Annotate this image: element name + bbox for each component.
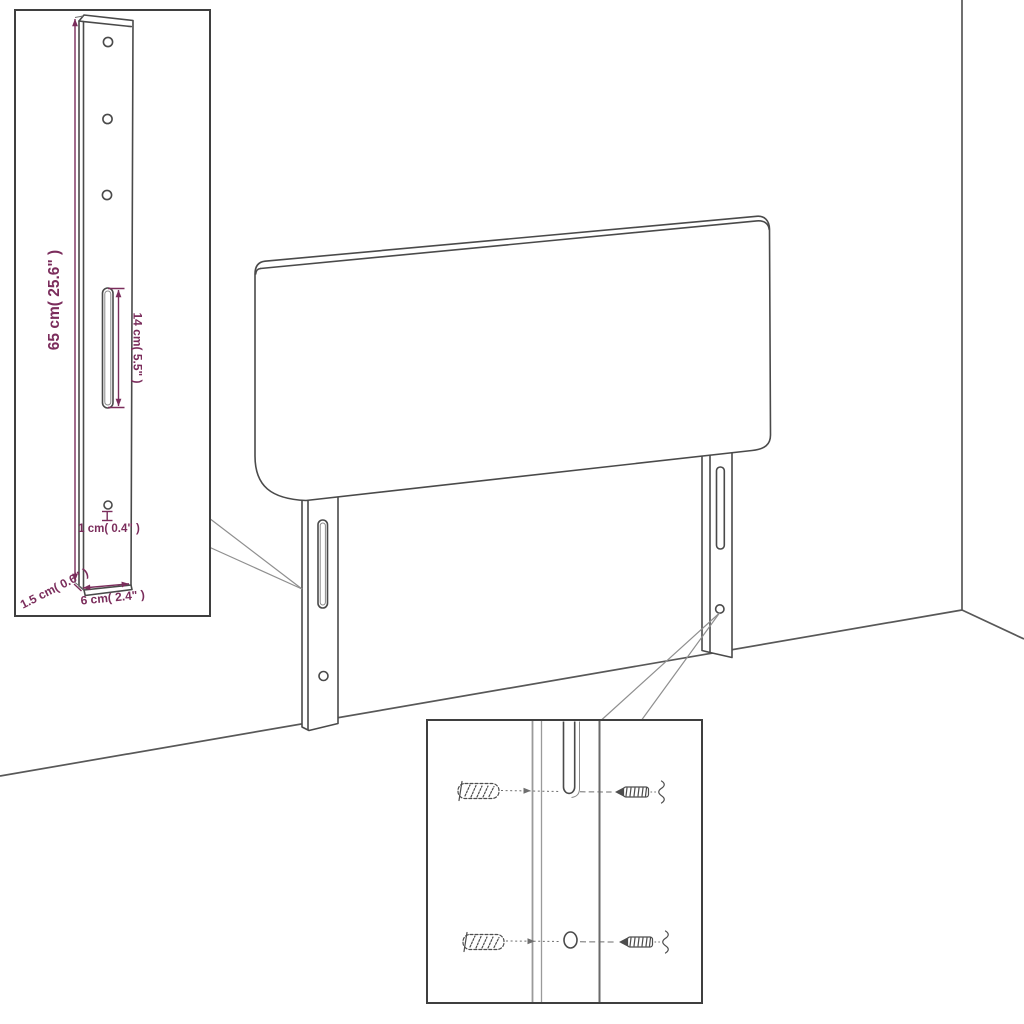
left-leg bbox=[302, 494, 338, 731]
dim-height-label: 65 cm( 25.6" ) bbox=[46, 250, 63, 350]
inset-leg-hole-2 bbox=[103, 114, 112, 123]
right-leg bbox=[702, 449, 732, 658]
right-leg-slot bbox=[717, 467, 725, 549]
floor-line-right bbox=[962, 610, 1024, 639]
inset-leg-slot bbox=[103, 288, 114, 408]
headboard-panel-outline bbox=[255, 216, 771, 500]
mounting-detail-inset bbox=[427, 720, 702, 1003]
headboard-panel bbox=[255, 216, 771, 500]
mount-inset-callout-line bbox=[642, 613, 720, 720]
dim-hole-label: 1 cm( 0.4" ) bbox=[78, 523, 140, 535]
leg-detail-inset: 65 cm( 25.6" ) 14 cm( 5.5" ) 1 cm( 0.4" … bbox=[15, 10, 210, 616]
inset2-hole bbox=[564, 932, 577, 948]
right-leg-hole bbox=[716, 605, 724, 613]
dim-slot-label: 14 cm( 5.5" ) bbox=[131, 312, 145, 383]
callout-lines bbox=[209, 518, 720, 720]
left-leg-hole bbox=[319, 672, 328, 681]
inset-leg-hole-1 bbox=[103, 37, 112, 46]
headboard-assembly-diagram: 65 cm( 25.6" ) 14 cm( 5.5" ) 1 cm( 0.4" … bbox=[0, 0, 1024, 1024]
inset-leg-bottom-hole bbox=[104, 501, 112, 509]
mount-inset-callout-line bbox=[602, 613, 720, 720]
inset-leg-hole-3 bbox=[102, 190, 111, 199]
inset2-slot bbox=[564, 722, 575, 794]
left-leg-slot bbox=[318, 520, 328, 608]
